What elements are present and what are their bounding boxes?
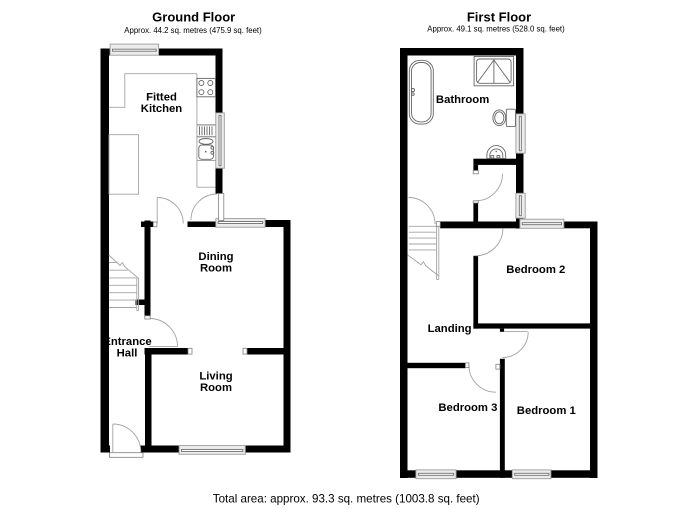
svg-text:Ground Floor: Ground Floor bbox=[152, 10, 235, 25]
svg-text:Hall: Hall bbox=[117, 347, 138, 359]
svg-text:Total area: approx. 93.3 sq. m: Total area: approx. 93.3 sq. metres (100… bbox=[213, 492, 480, 505]
svg-text:First Floor: First Floor bbox=[467, 10, 531, 25]
svg-text:Room: Room bbox=[200, 382, 232, 394]
svg-text:Room: Room bbox=[200, 263, 232, 275]
svg-text:Approx. 44.2 sq. metres (475.9: Approx. 44.2 sq. metres (475.9 sq. feet) bbox=[124, 26, 262, 35]
svg-text:Bedroom 2: Bedroom 2 bbox=[506, 264, 565, 276]
svg-text:Dining: Dining bbox=[198, 251, 233, 263]
svg-text:Bedroom 3: Bedroom 3 bbox=[438, 402, 497, 414]
svg-text:Fitted: Fitted bbox=[146, 92, 177, 104]
svg-text:Bedroom 1: Bedroom 1 bbox=[517, 405, 576, 417]
svg-text:Entrance: Entrance bbox=[103, 336, 151, 348]
svg-text:Living: Living bbox=[199, 370, 232, 382]
svg-text:Kitchen: Kitchen bbox=[141, 103, 183, 115]
svg-text:Approx. 49.1 sq. metres (528.0: Approx. 49.1 sq. metres (528.0 sq. feet) bbox=[427, 25, 565, 34]
svg-text:Landing: Landing bbox=[428, 323, 472, 335]
svg-text:Bathroom: Bathroom bbox=[436, 94, 489, 106]
